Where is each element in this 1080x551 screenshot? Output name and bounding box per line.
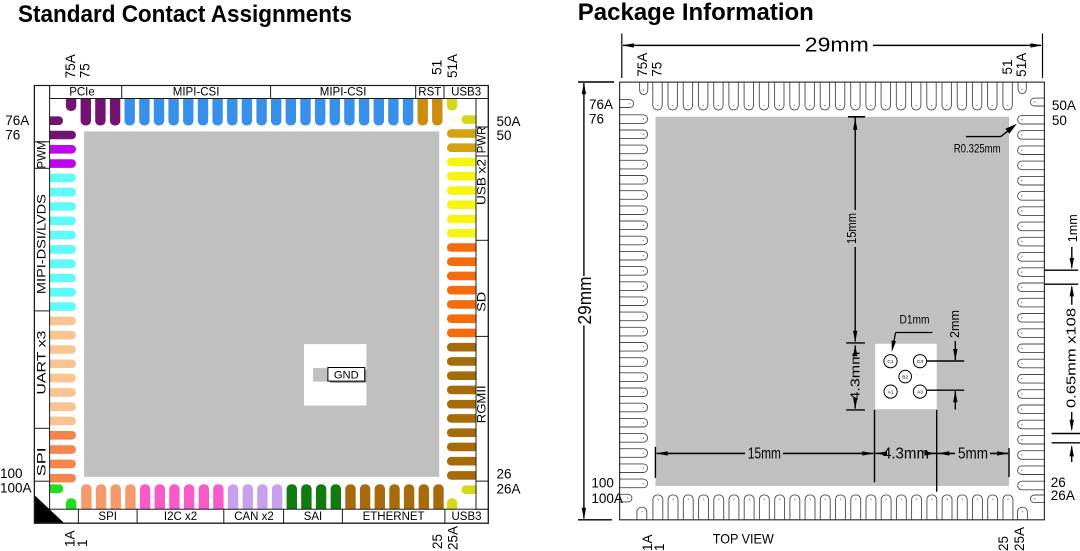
svg-text:USB3: USB3 xyxy=(451,87,481,99)
svg-text:50A: 50A xyxy=(1052,98,1076,113)
svg-text:USB3: USB3 xyxy=(451,511,481,523)
svg-text:26A: 26A xyxy=(1051,488,1075,503)
svg-text:A3: A3 xyxy=(917,389,923,395)
svg-text:15mm: 15mm xyxy=(748,446,781,463)
svg-text:76A: 76A xyxy=(5,113,29,128)
svg-text:5mm: 5mm xyxy=(958,446,988,463)
svg-text:PWM: PWM xyxy=(37,140,49,168)
svg-text:75A: 75A xyxy=(635,53,650,77)
svg-text:1: 1 xyxy=(652,543,667,551)
svg-text:CAN x2: CAN x2 xyxy=(234,511,274,523)
svg-text:4.3mm: 4.3mm xyxy=(883,446,929,463)
svg-text:100: 100 xyxy=(0,466,23,481)
svg-text:26: 26 xyxy=(497,467,512,482)
svg-text:4.3mm: 4.3mm xyxy=(848,352,863,401)
svg-text:RGMII: RGMII xyxy=(477,385,489,423)
svg-text:MIPI-CSI: MIPI-CSI xyxy=(173,87,220,99)
svg-text:MIPI-CSI: MIPI-CSI xyxy=(320,87,367,99)
svg-text:A1: A1 xyxy=(888,389,894,395)
svg-text:0.65mm x108: 0.65mm x108 xyxy=(1065,308,1079,408)
svg-text:29mm: 29mm xyxy=(805,35,869,57)
svg-text:51A: 51A xyxy=(1014,53,1029,77)
svg-text:100A: 100A xyxy=(0,480,32,495)
svg-text:MIPI-DSI/LVDS: MIPI-DSI/LVDS xyxy=(37,194,49,294)
svg-text:PCIe: PCIe xyxy=(69,87,95,99)
svg-text:29mm: 29mm xyxy=(575,277,595,325)
svg-text:C1: C1 xyxy=(887,359,893,365)
svg-text:UART x3: UART x3 xyxy=(37,331,49,395)
svg-text:1: 1 xyxy=(75,539,90,547)
svg-text:R0.325mm: R0.325mm xyxy=(954,144,1001,156)
svg-text:GND: GND xyxy=(334,369,359,381)
svg-text:C3: C3 xyxy=(917,359,923,365)
svg-text:SAI: SAI xyxy=(304,511,323,523)
svg-text:75: 75 xyxy=(650,62,665,77)
svg-text:SPI: SPI xyxy=(98,511,117,523)
svg-text:RST: RST xyxy=(418,87,441,99)
svg-text:25: 25 xyxy=(430,534,445,549)
svg-text:76A: 76A xyxy=(589,97,613,112)
svg-text:D1mm: D1mm xyxy=(900,315,930,327)
svg-text:Standard Contact Assignments: Standard Contact Assignments xyxy=(18,1,352,28)
svg-text:25A: 25A xyxy=(1012,527,1027,551)
svg-text:51: 51 xyxy=(1000,59,1015,74)
svg-text:75A: 75A xyxy=(63,54,78,78)
svg-text:SPI: SPI xyxy=(37,447,49,476)
svg-text:50A: 50A xyxy=(497,114,521,129)
svg-text:Package Information: Package Information xyxy=(578,0,814,26)
svg-text:PWR: PWR xyxy=(477,127,489,154)
svg-text:100: 100 xyxy=(591,476,614,491)
svg-text:76: 76 xyxy=(5,127,20,142)
svg-text:SD: SD xyxy=(477,292,489,312)
svg-text:50: 50 xyxy=(1052,113,1067,128)
svg-text:USB x2: USB x2 xyxy=(477,159,489,205)
svg-text:51A: 51A xyxy=(445,54,460,78)
svg-text:51: 51 xyxy=(429,60,444,75)
svg-text:25A: 25A xyxy=(445,526,460,550)
svg-text:25: 25 xyxy=(996,536,1011,551)
svg-text:ETHERNET: ETHERNET xyxy=(363,511,425,523)
svg-text:2mm: 2mm xyxy=(948,310,962,338)
svg-text:50: 50 xyxy=(497,128,512,143)
svg-text:100A: 100A xyxy=(591,491,623,506)
svg-text:15mm: 15mm xyxy=(844,213,859,244)
svg-text:TOP VIEW: TOP VIEW xyxy=(713,531,775,547)
svg-text:1mm: 1mm xyxy=(1066,214,1080,242)
svg-text:76: 76 xyxy=(589,112,604,127)
svg-text:B2: B2 xyxy=(902,374,908,380)
svg-text:75: 75 xyxy=(77,63,92,78)
svg-text:I2C x2: I2C x2 xyxy=(164,511,197,523)
svg-text:26A: 26A xyxy=(497,481,521,496)
